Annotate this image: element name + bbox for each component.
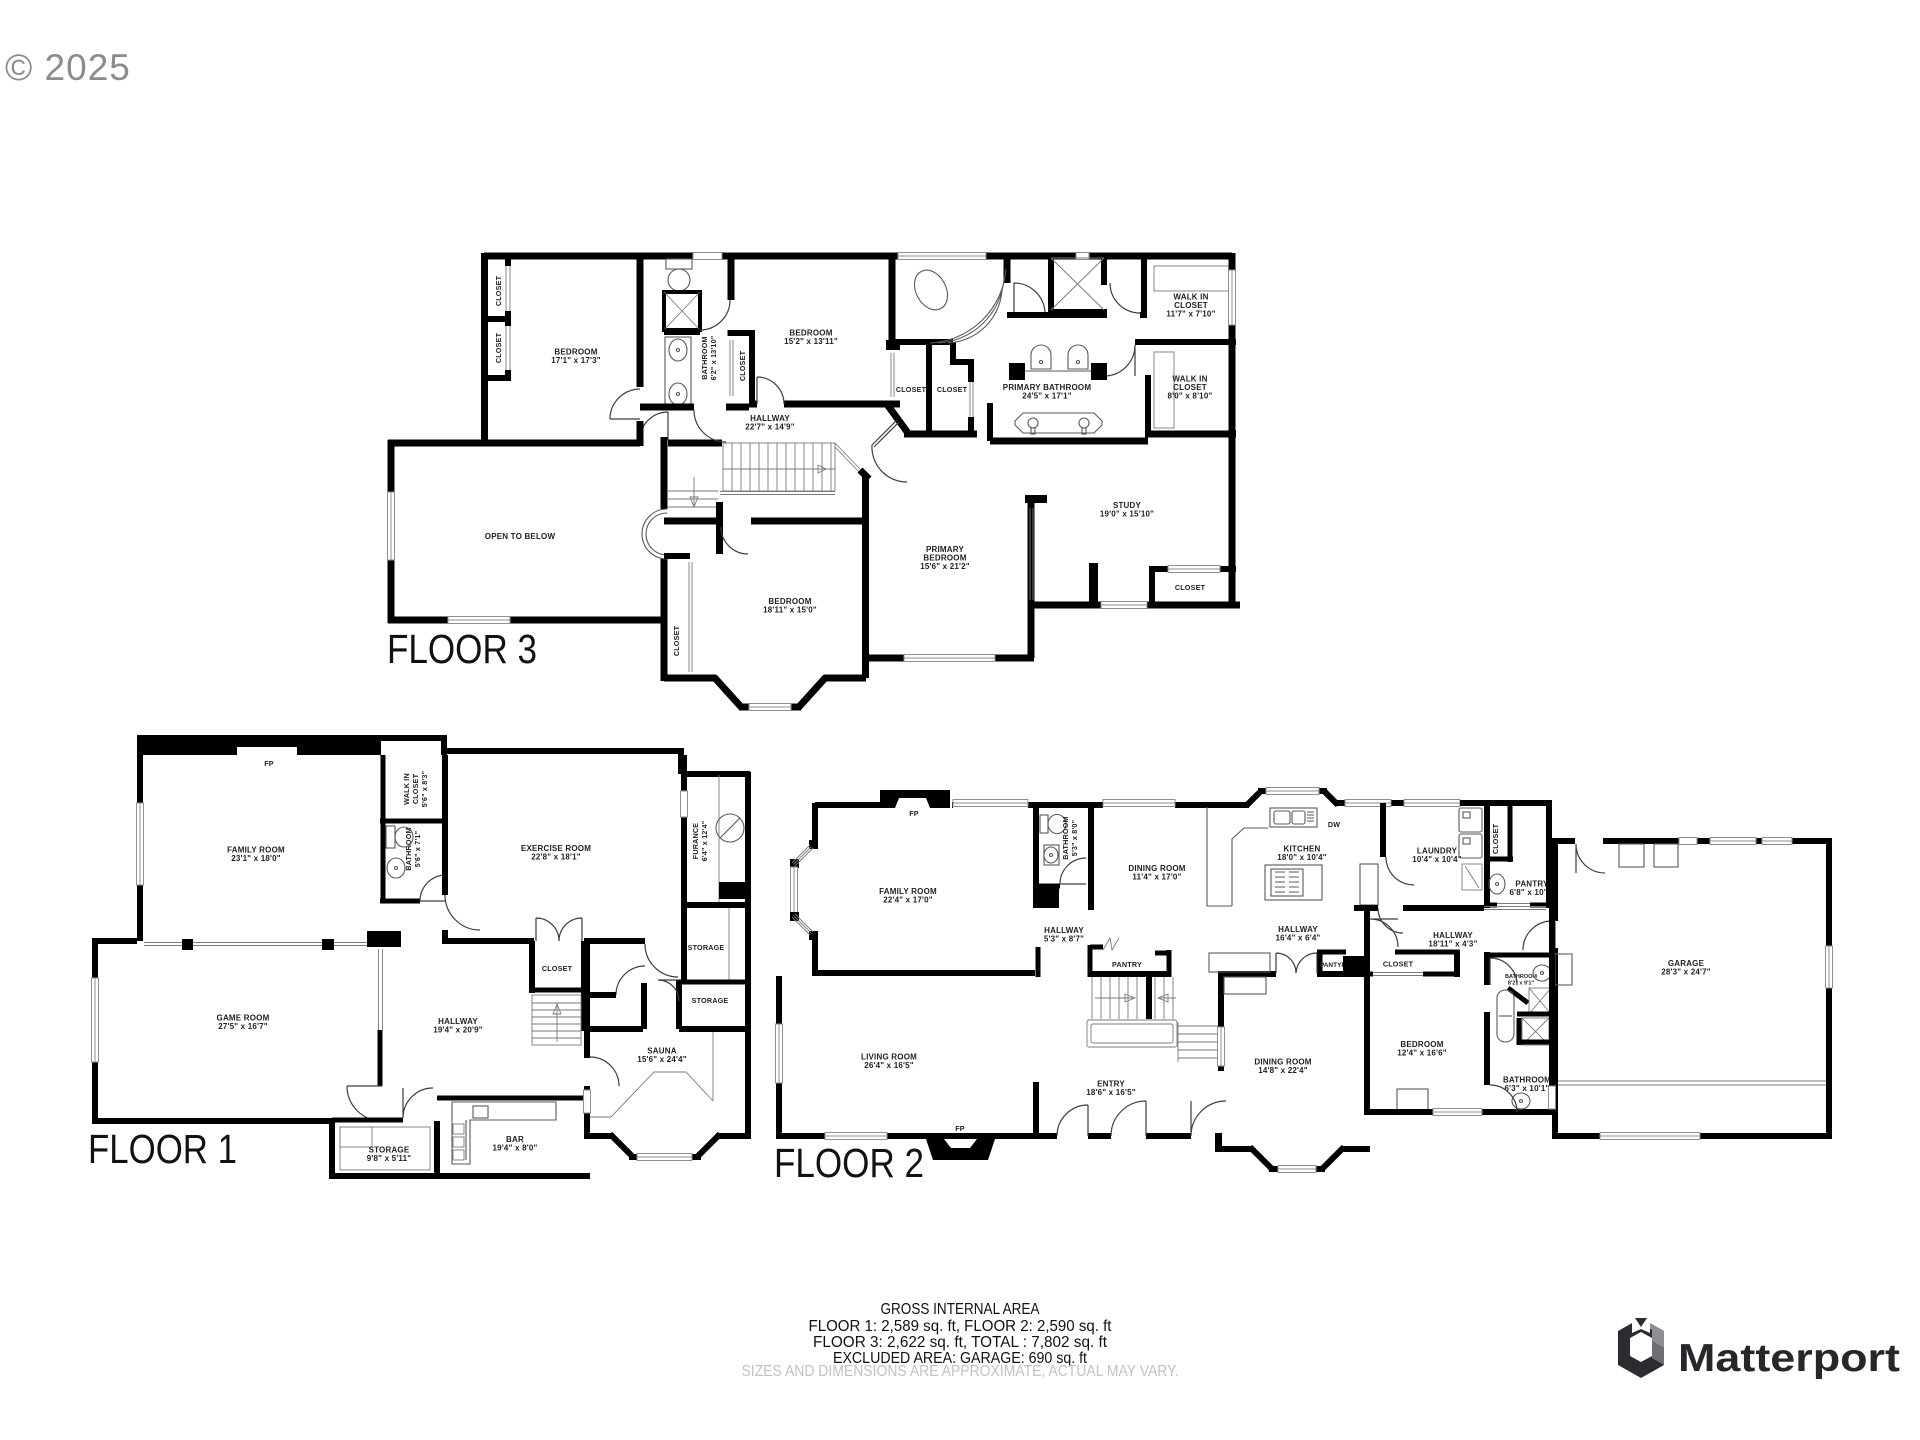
svg-text:SIZES AND DIMENSIONS ARE APPRO: SIZES AND DIMENSIONS ARE APPROXIMATE, AC… (742, 1363, 1179, 1380)
svg-text:CLOSET: CLOSET (672, 625, 681, 656)
svg-text:18'6" x 16'5": 18'6" x 16'5" (1086, 1088, 1136, 1097)
svg-text:16'4" x 6'4": 16'4" x 6'4" (1276, 934, 1321, 943)
svg-text:5'3" x 8'7": 5'3" x 8'7" (1044, 935, 1084, 944)
svg-text:15'2" x 13'11": 15'2" x 13'11" (784, 337, 838, 346)
svg-text:GROSS INTERNAL AREA: GROSS INTERNAL AREA (881, 1301, 1041, 1318)
svg-text:5'6" x 8'3": 5'6" x 8'3" (420, 771, 429, 807)
svg-text:18'0" x 10'4": 18'0" x 10'4" (1277, 853, 1327, 862)
svg-text:8'0" x 8'10": 8'0" x 8'10" (1168, 392, 1213, 401)
svg-text:BATHROOM: BATHROOM (700, 336, 709, 379)
svg-text:FLOOR 2: FLOOR 2 (774, 1140, 924, 1186)
svg-text:24'5" x 17'1": 24'5" x 17'1" (1022, 392, 1072, 401)
svg-text:STORAGE: STORAGE (692, 996, 729, 1005)
svg-text:9'8" x 5'11": 9'8" x 5'11" (367, 1154, 412, 1163)
svg-text:23'1" x 18'0": 23'1" x 18'0" (231, 854, 281, 863)
svg-text:© 2025: © 2025 (5, 47, 131, 88)
svg-text:WALK IN: WALK IN (402, 773, 411, 805)
svg-text:FLOOR 1: FLOOR 1 (88, 1126, 237, 1172)
svg-text:STORAGE: STORAGE (688, 943, 725, 952)
svg-text:CLOSET: CLOSET (542, 964, 573, 973)
svg-text:BATHROOM: BATHROOM (1505, 974, 1537, 980)
svg-text:CLOSET: CLOSET (411, 773, 420, 804)
svg-text:15'6" x 21'2": 15'6" x 21'2" (920, 562, 970, 571)
svg-text:DW: DW (1328, 820, 1340, 829)
svg-text:FP: FP (909, 809, 919, 818)
svg-text:FLOOR 3: 2,622 sq. ft, TOTAL :: FLOOR 3: 2,622 sq. ft, TOTAL : 7,802 sq.… (813, 1334, 1108, 1351)
svg-text:26'4" x 16'5": 26'4" x 16'5" (864, 1061, 914, 1070)
svg-text:17'1" x 17'3": 17'1" x 17'3" (551, 356, 601, 365)
svg-text:19'4" x 20'9": 19'4" x 20'9" (433, 1026, 483, 1035)
svg-text:8'2" x 9'1": 8'2" x 9'1" (1508, 981, 1535, 987)
svg-text:22'8" x 18'1": 22'8" x 18'1" (531, 853, 581, 862)
svg-text:BATHROOM: BATHROOM (1061, 816, 1070, 859)
svg-text:CLOSET: CLOSET (1491, 823, 1500, 854)
svg-text:FP: FP (955, 1124, 965, 1133)
svg-text:5'6" x 7'1": 5'6" x 7'1" (413, 831, 422, 867)
svg-text:27'5" x 16'7": 27'5" x 16'7" (218, 1022, 268, 1031)
svg-text:OPEN TO BELOW: OPEN TO BELOW (485, 532, 556, 541)
svg-text:22'4" x 17'0": 22'4" x 17'0" (883, 896, 933, 905)
svg-text:18'11" x 4'3": 18'11" x 4'3" (1428, 940, 1477, 949)
svg-text:BATHROOM: BATHROOM (404, 827, 413, 870)
svg-text:PANTYR: PANTYR (1320, 962, 1347, 969)
svg-text:14'8" x 22'4": 14'8" x 22'4" (1258, 1066, 1308, 1075)
svg-text:FP: FP (264, 759, 274, 768)
svg-text:6'4" x 12'4": 6'4" x 12'4" (700, 821, 709, 862)
svg-text:CLOSET: CLOSET (1175, 583, 1206, 592)
svg-text:5'3" x 8'0": 5'3" x 8'0" (1070, 820, 1079, 856)
svg-text:Matterport: Matterport (1678, 1337, 1900, 1380)
svg-text:PANTRY: PANTRY (1112, 960, 1142, 969)
svg-text:12'4" x 16'6": 12'4" x 16'6" (1397, 1049, 1447, 1058)
svg-text:CLOSET: CLOSET (494, 332, 503, 363)
svg-text:CLOSET: CLOSET (937, 385, 968, 394)
svg-text:18'11" x 15'0": 18'11" x 15'0" (763, 606, 817, 615)
svg-text:CLOSET: CLOSET (1383, 960, 1414, 969)
svg-text:6'2" x 13'10": 6'2" x 13'10" (709, 336, 718, 381)
svg-text:CLOSET: CLOSET (738, 350, 747, 381)
svg-text:CLOSET: CLOSET (896, 385, 927, 394)
svg-text:FURANCE: FURANCE (691, 823, 700, 860)
svg-text:11'7" x 7'10": 11'7" x 7'10" (1166, 310, 1215, 319)
svg-text:10'4" x 10'4": 10'4" x 10'4" (1412, 855, 1462, 864)
svg-text:CLOSET: CLOSET (494, 275, 503, 306)
svg-text:22'7" x 14'9": 22'7" x 14'9" (745, 423, 795, 432)
svg-text:FLOOR 3: FLOOR 3 (387, 626, 537, 672)
svg-text:19'4" x 8'0": 19'4" x 8'0" (493, 1144, 538, 1153)
svg-text:11'4" x 17'0": 11'4" x 17'0" (1132, 873, 1181, 882)
svg-text:6'3" x 10'1": 6'3" x 10'1" (1505, 1084, 1550, 1093)
svg-text:19'0" x 15'10": 19'0" x 15'10" (1100, 510, 1154, 519)
svg-text:FLOOR 1: 2,589 sq. ft, FLOOR 2: FLOOR 1: 2,589 sq. ft, FLOOR 2: 2,590 sq… (809, 1318, 1113, 1335)
svg-text:15'6" x 24'4": 15'6" x 24'4" (637, 1055, 687, 1064)
svg-text:28'3" x 24'7": 28'3" x 24'7" (1661, 968, 1711, 977)
